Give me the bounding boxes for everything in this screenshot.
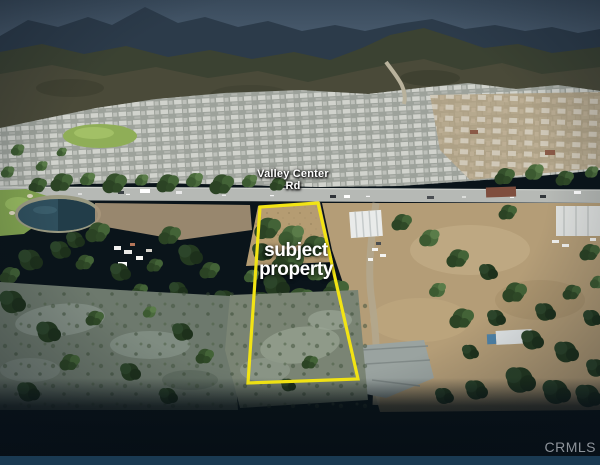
aerial-photo [0, 0, 600, 465]
crmls-watermark: CRMLS [544, 439, 596, 455]
vignette-overlay [0, 0, 600, 465]
listing-photo: Valley Center Rd subject property CRMLS [0, 0, 600, 465]
bottom-blue-bar [0, 456, 600, 465]
